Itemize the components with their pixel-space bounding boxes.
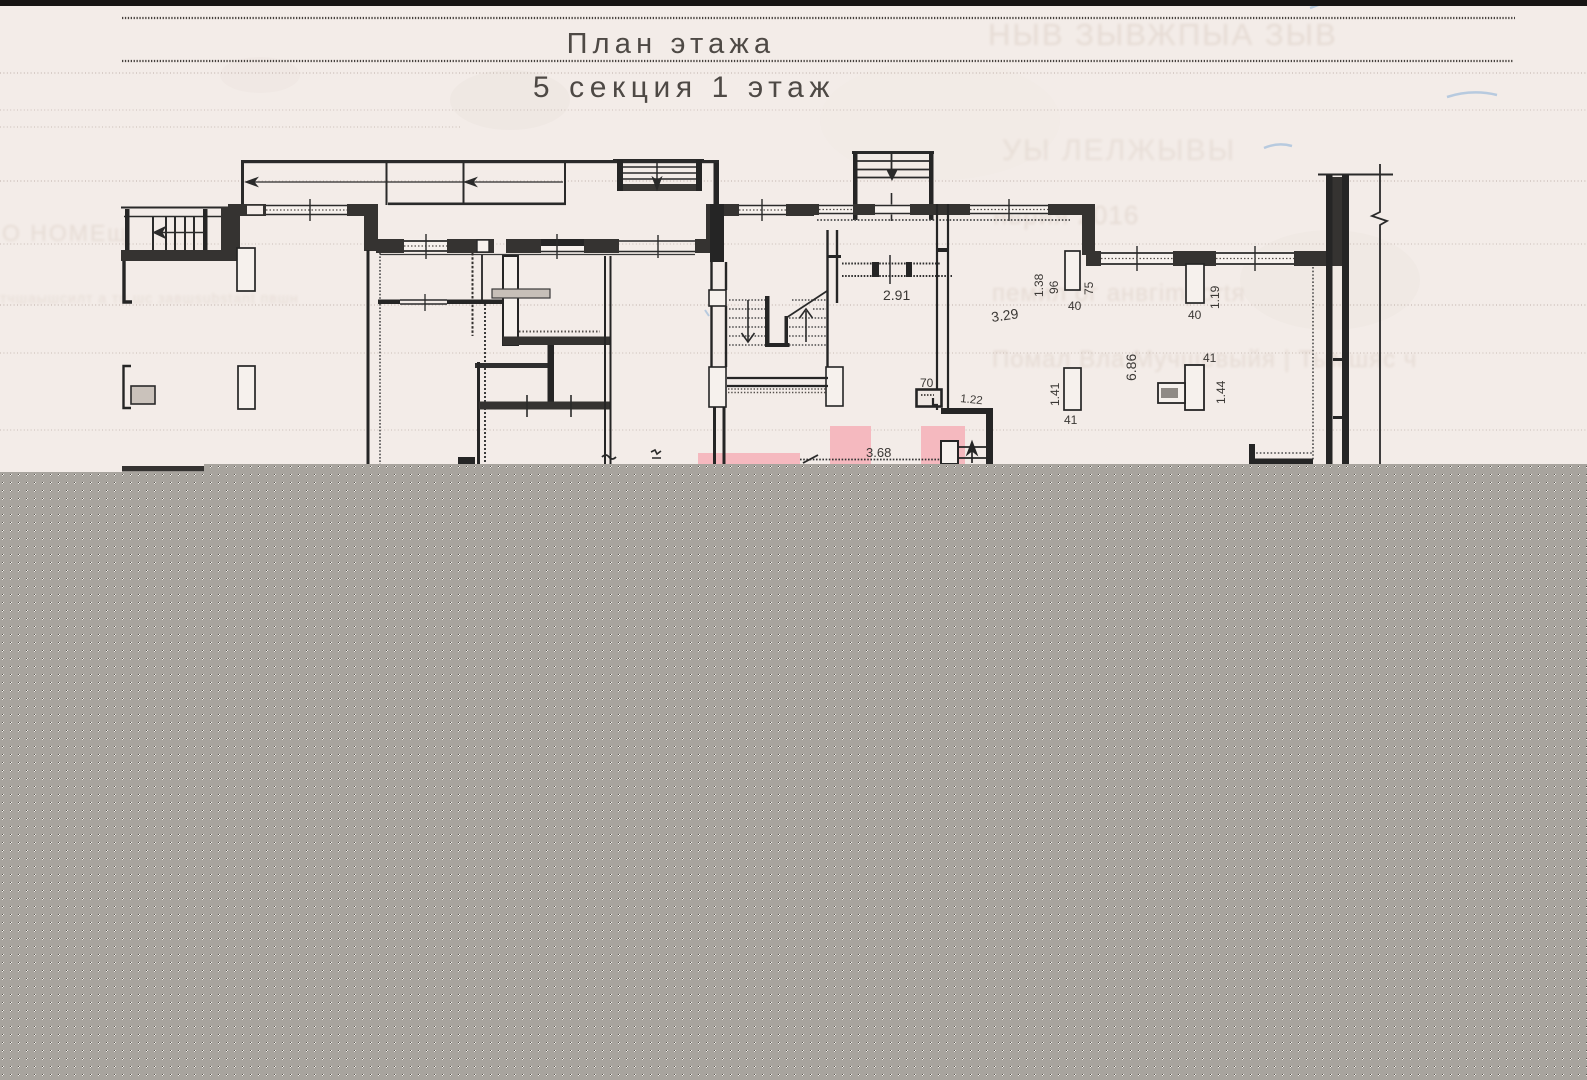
svg-text:1.22: 1.22 [960,393,984,407]
svg-text:5 секция 1 этаж: 5 секция 1 этаж [533,71,835,104]
svg-text:1.38: 1.38 [1032,273,1046,297]
svg-text:1.41: 1.41 [1048,382,1062,406]
svg-text:96: 96 [1047,280,1061,294]
svg-text:1.19: 1.19 [1208,285,1222,309]
svg-text:70: 70 [920,376,934,390]
svg-text:40: 40 [1068,299,1082,313]
svg-text:41: 41 [1203,351,1217,365]
svg-text:НЫВ ЗЫВЖПЫА ЗЫВ: НЫВ ЗЫВЖПЫА ЗЫВ [988,17,1338,52]
svg-text:тчшаышсилт а тп шс завшsubstan: тчшаышсилт а тп шс завшsubstant пвшн [0,290,299,306]
svg-text:6.86: 6.86 [1123,354,1139,381]
svg-text:75: 75 [1082,281,1096,295]
svg-text:1.44: 1.44 [1214,380,1228,404]
svg-text:3.68: 3.68 [866,445,891,460]
svg-text:40: 40 [1188,308,1202,322]
svg-text:План этажа: План этажа [567,28,776,60]
svg-text:УЫ ЛЕЛЖЫВЫ: УЫ ЛЕЛЖЫВЫ [1002,134,1236,167]
svg-text:О НОМЕщ: О НОМЕщ [2,220,128,246]
svg-text:41: 41 [1064,413,1078,427]
svg-text:2.91: 2.91 [883,287,910,303]
